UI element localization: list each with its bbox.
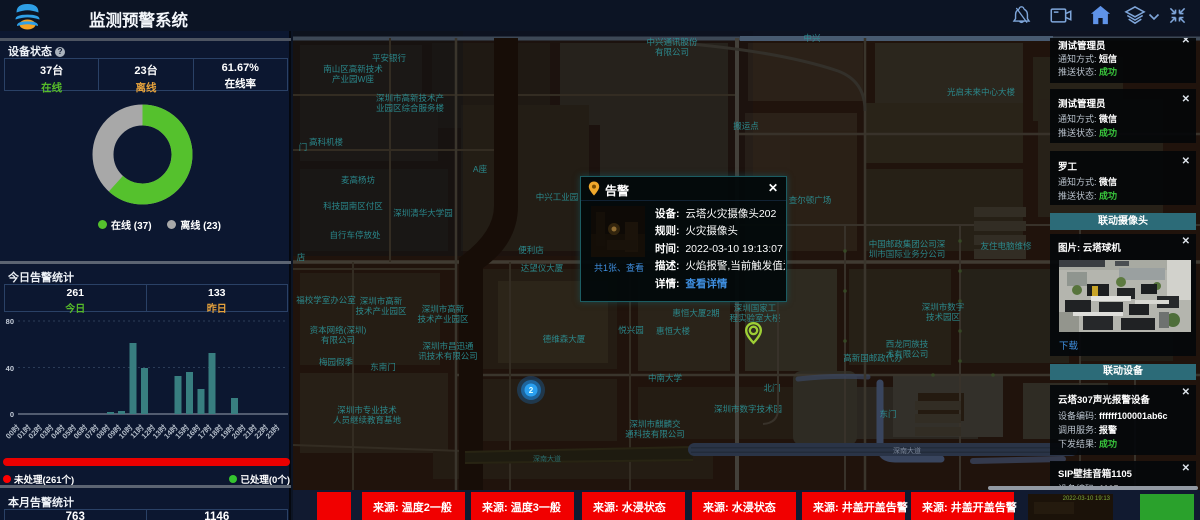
svg-text:A座: A座 bbox=[473, 164, 488, 174]
svg-text:深圳市专业技术: 深圳市专业技术 bbox=[337, 405, 397, 415]
svg-text:自行车停放处: 自行车停放处 bbox=[329, 230, 381, 240]
svg-text:技术园区: 技术园区 bbox=[926, 312, 961, 322]
svg-text:西龙同族技: 西龙同族技 bbox=[886, 339, 929, 349]
svg-text:圳市国际业务分公司: 圳市国际业务分公司 bbox=[869, 249, 946, 259]
svg-text:深南大道: 深南大道 bbox=[533, 454, 561, 463]
svg-text:有限公司: 有限公司 bbox=[321, 335, 355, 345]
svg-text:人员继续教育基地: 人员继续教育基地 bbox=[333, 415, 402, 425]
svg-text:南山区高新技术: 南山区高新技术 bbox=[323, 64, 383, 74]
svg-text:40: 40 bbox=[6, 364, 14, 373]
svg-text:程实验室大楼: 程实验室大楼 bbox=[729, 313, 781, 323]
svg-text:高新国邮政代办: 高新国邮政代办 bbox=[843, 353, 903, 363]
svg-text:中南大学: 中南大学 bbox=[648, 373, 683, 383]
svg-text:门: 门 bbox=[299, 142, 308, 152]
svg-text:平安银行: 平安银行 bbox=[372, 53, 407, 63]
svg-text:深圳市昌迅通: 深圳市昌迅通 bbox=[422, 341, 474, 351]
svg-text:深圳市高新技术产: 深圳市高新技术产 bbox=[376, 93, 444, 103]
svg-text:搬运点: 搬运点 bbox=[733, 121, 759, 131]
svg-text:业园区综合服务楼: 业园区综合服务楼 bbox=[376, 103, 445, 113]
svg-text:中兴工业园: 中兴工业园 bbox=[536, 192, 579, 202]
svg-text:深圳市高新: 深圳市高新 bbox=[360, 296, 403, 306]
svg-text:有限公司: 有限公司 bbox=[655, 47, 689, 57]
svg-text:东门: 东门 bbox=[879, 409, 896, 419]
svg-text:深圳市高新: 深圳市高新 bbox=[422, 304, 465, 314]
svg-text:资本网络(深圳): 资本网络(深圳) bbox=[310, 325, 367, 335]
svg-text:福校学室办公室: 福校学室办公室 bbox=[296, 295, 356, 305]
svg-text:友住电脑维修: 友住电脑维修 bbox=[980, 241, 1032, 251]
svg-text:0: 0 bbox=[10, 410, 14, 419]
svg-text:深圳国家工: 深圳国家工 bbox=[734, 303, 777, 313]
svg-text:店: 店 bbox=[297, 252, 306, 262]
svg-text:便利店: 便利店 bbox=[518, 245, 544, 255]
svg-text:光启未来中心大楼: 光启未来中心大楼 bbox=[947, 87, 1016, 97]
svg-text:80: 80 bbox=[6, 317, 14, 326]
svg-text:梅园假季: 梅园假季 bbox=[319, 357, 354, 367]
svg-text:中兴: 中兴 bbox=[803, 33, 821, 43]
svg-text:东南门: 东南门 bbox=[370, 362, 396, 372]
svg-text:2: 2 bbox=[529, 386, 534, 395]
svg-text:达望仪大厦: 达望仪大厦 bbox=[521, 263, 564, 273]
svg-text:技术产业园区: 技术产业园区 bbox=[417, 314, 469, 324]
svg-text:通科技有限公司: 通科技有限公司 bbox=[625, 429, 685, 439]
svg-text:悦兴园: 悦兴园 bbox=[618, 325, 644, 335]
svg-text:技术产业园区: 技术产业园区 bbox=[355, 306, 407, 316]
svg-text:产业园W座: 产业园W座 bbox=[332, 74, 375, 84]
svg-text:深圳市数字技术园: 深圳市数字技术园 bbox=[714, 404, 782, 414]
svg-text:麦高杨坊: 麦高杨坊 bbox=[341, 175, 376, 185]
svg-text:查尔顿广场: 查尔顿广场 bbox=[789, 195, 832, 205]
svg-text:深圳市麒麟交: 深圳市麒麟交 bbox=[629, 419, 681, 429]
svg-text:惠恒大楼: 惠恒大楼 bbox=[656, 326, 691, 336]
svg-text:德维森大厦: 德维森大厦 bbox=[543, 334, 586, 344]
svg-text:惠恒大厦2期: 惠恒大厦2期 bbox=[672, 308, 719, 318]
svg-text:科技园南区付区: 科技园南区付区 bbox=[323, 201, 383, 211]
svg-text:深南大道: 深南大道 bbox=[893, 446, 921, 455]
svg-text:深圳清华大学园: 深圳清华大学园 bbox=[393, 208, 453, 218]
svg-text:高科机楼: 高科机楼 bbox=[309, 137, 344, 147]
svg-text:讯技术有限公司: 讯技术有限公司 bbox=[418, 351, 478, 361]
svg-text:中兴通讯股份: 中兴通讯股份 bbox=[646, 37, 698, 47]
svg-text:深圳市数字: 深圳市数字 bbox=[922, 302, 965, 312]
svg-text:23时: 23时 bbox=[263, 422, 282, 441]
svg-text:中国邮政集团公司深: 中国邮政集团公司深 bbox=[869, 239, 946, 249]
